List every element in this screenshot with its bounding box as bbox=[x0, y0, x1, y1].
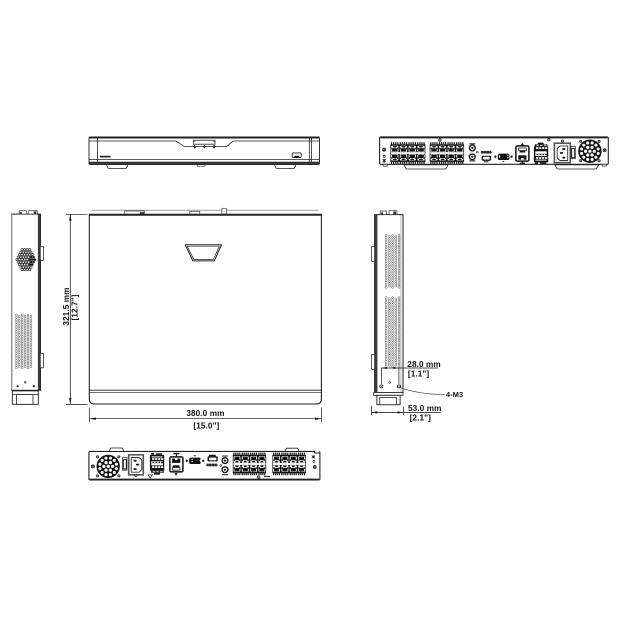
svg-text:[12.7"]: [12.7"] bbox=[70, 294, 79, 320]
svg-text:28.0 mm: 28.0 mm bbox=[407, 360, 440, 369]
svg-text:53.0 mm: 53.0 mm bbox=[408, 404, 441, 413]
svg-text:4-M3: 4-M3 bbox=[446, 390, 463, 399]
svg-text:380.0 mm: 380.0 mm bbox=[186, 409, 224, 418]
svg-text:[1.1"]: [1.1"] bbox=[408, 370, 429, 379]
svg-text:[15.0"]: [15.0"] bbox=[193, 422, 219, 431]
svg-text:[2.1"]: [2.1"] bbox=[410, 414, 431, 423]
